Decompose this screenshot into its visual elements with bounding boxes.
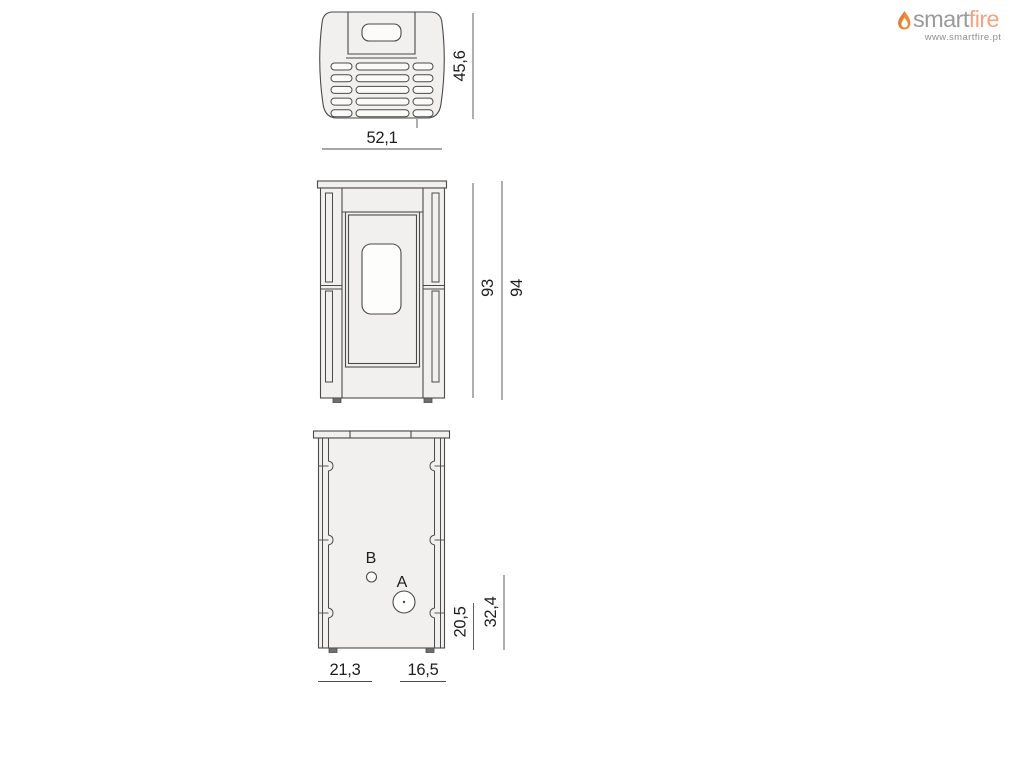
vent-slot: [413, 63, 433, 70]
brand-logo: smartfire www.smartfire.pt: [897, 8, 1015, 42]
vent-slot: [413, 110, 433, 117]
front-top-cap: [318, 181, 447, 188]
stove-dimension-diagram: 52,1 45,6: [0, 0, 1024, 768]
top-view: [320, 12, 445, 118]
stove-foot: [329, 648, 337, 653]
port-a-label: A: [397, 574, 408, 591]
brand-wordmark: smartfire: [897, 8, 1015, 32]
stove-foot: [426, 648, 434, 653]
port-b-label: B: [366, 550, 377, 567]
dim-label-height-total: 94: [508, 279, 526, 297]
vent-slot: [331, 75, 352, 82]
dim-label-offset-left: 21,3: [330, 661, 361, 679]
stove-foot: [333, 398, 341, 403]
dim-label-height-b: 32,4: [482, 596, 500, 627]
lid-handle: [362, 24, 401, 41]
vent-slot: [331, 110, 352, 117]
vent-slot: [331, 63, 352, 70]
brand-part-smart: smart: [913, 8, 969, 32]
vent-slot: [331, 98, 352, 105]
vent-slot: [356, 110, 409, 117]
dim-label-height-a: 20,5: [452, 606, 470, 637]
dim-label-height-body: 93: [479, 279, 497, 297]
stove-foot: [424, 398, 432, 403]
technical-drawing-page: 52,1 45,6: [0, 0, 1024, 768]
vent-slot: [413, 86, 433, 93]
vent-slot: [331, 86, 352, 93]
dim-label-offset-right: 16,5: [408, 661, 439, 679]
dim-label-top-width: 52,1: [367, 129, 398, 147]
vent-slot: [356, 86, 409, 93]
front-view: [318, 181, 447, 403]
flame-icon: [897, 10, 911, 31]
rear-view: [314, 431, 450, 653]
dim-label-top-depth: 45,6: [451, 50, 469, 81]
port-b-circle: [367, 572, 377, 582]
brand-website: www.smartfire.pt: [897, 33, 1015, 43]
rear-body: [319, 438, 445, 648]
vent-slot: [356, 75, 409, 82]
vent-slot: [356, 98, 409, 105]
vent-slot: [413, 98, 433, 105]
brand-part-fire: fire: [969, 8, 999, 32]
vent-slot: [413, 75, 433, 82]
port-a-center-dot: [403, 601, 405, 603]
vent-slot: [356, 63, 409, 70]
door-window: [362, 244, 401, 314]
